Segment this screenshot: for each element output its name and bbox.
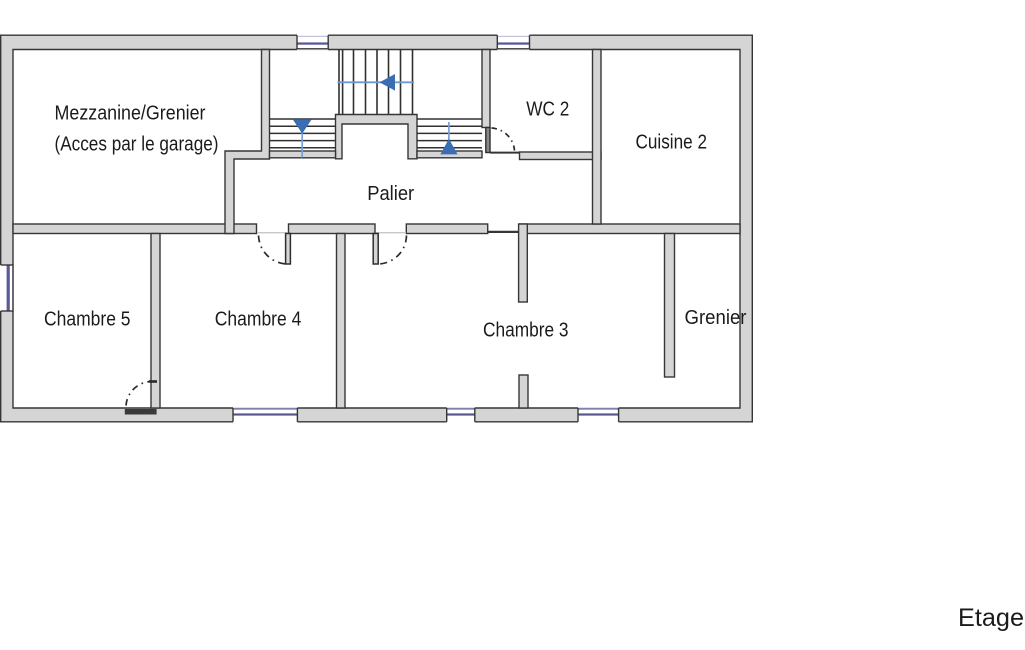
svg-text:Chambre 3: Chambre 3 [483, 319, 569, 341]
svg-text:(Acces par le garage): (Acces par le garage) [55, 134, 219, 156]
svg-text:Chambre 4: Chambre 4 [215, 308, 301, 330]
svg-text:Grenier: Grenier [685, 307, 747, 329]
svg-text:Palier: Palier [367, 183, 414, 205]
svg-text:WC 2: WC 2 [526, 99, 569, 121]
svg-text:Etage: Etage [958, 604, 1024, 632]
svg-text:Chambre 5: Chambre 5 [44, 308, 131, 330]
svg-text:Cuisine 2: Cuisine 2 [636, 132, 708, 154]
svg-text:Mezzanine/Grenier: Mezzanine/Grenier [55, 103, 206, 125]
